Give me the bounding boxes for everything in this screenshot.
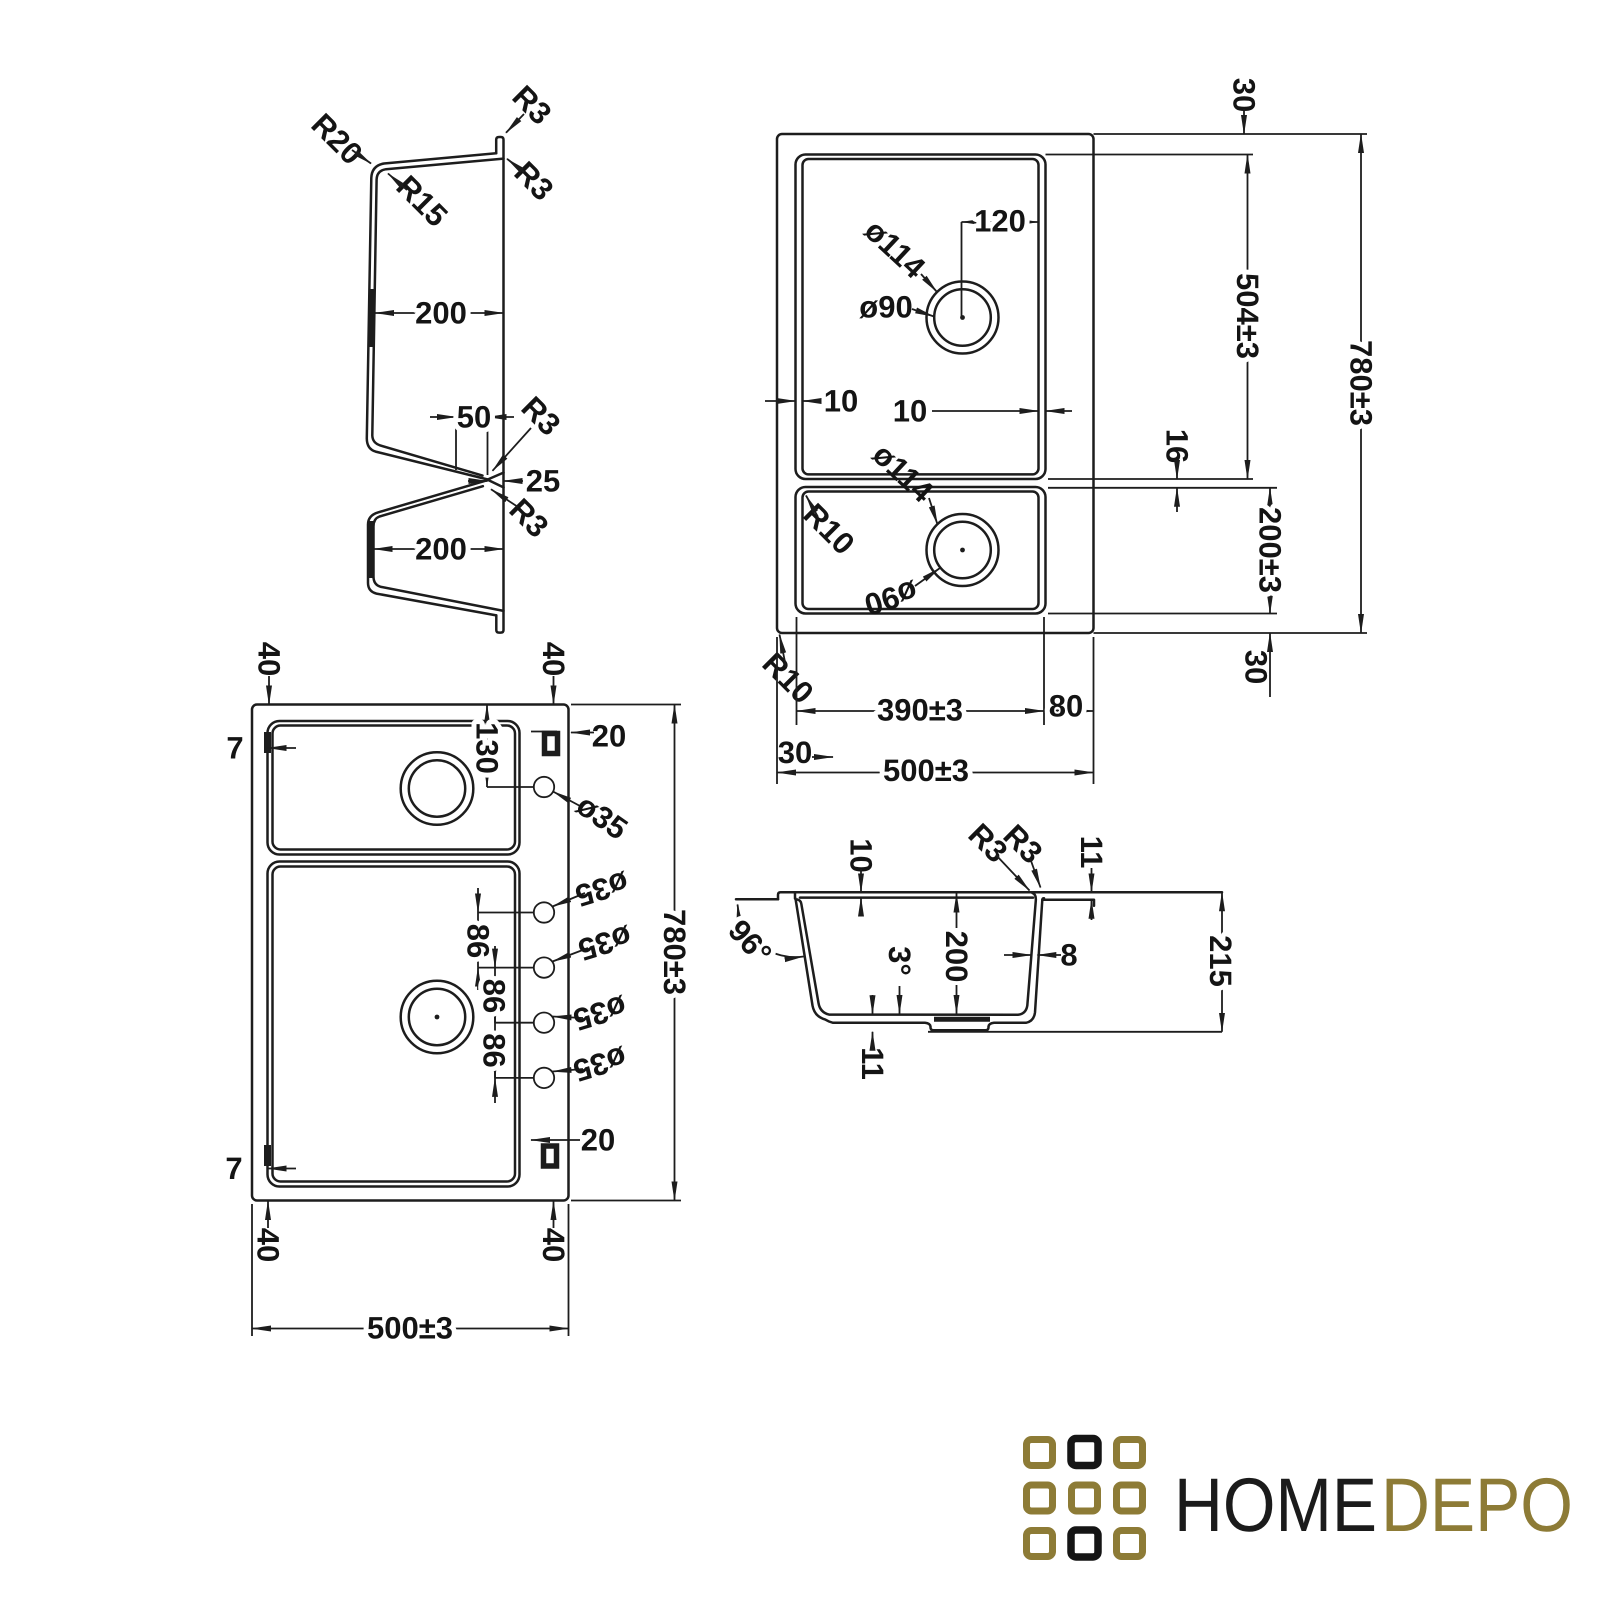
svg-text:R20: R20 [305,107,370,172]
svg-text:120: 120 [974,204,1026,239]
svg-text:780±3: 780±3 [657,909,692,995]
svg-text:200: 200 [939,931,974,983]
svg-text:HOME: HOME [1174,1463,1377,1548]
svg-text:30: 30 [1227,78,1262,112]
svg-text:11: 11 [1074,836,1109,869]
svg-text:R3: R3 [508,155,561,208]
svg-text:200: 200 [415,532,467,567]
svg-text:10: 10 [824,384,858,419]
svg-text:40: 40 [536,642,571,676]
svg-text:16: 16 [1160,429,1195,463]
svg-text:7: 7 [226,731,243,766]
svg-text:R3: R3 [506,79,559,132]
svg-text:ø90: ø90 [859,290,912,325]
svg-text:ø35: ø35 [569,1039,630,1088]
svg-text:504±3: 504±3 [1230,273,1265,359]
svg-text:3°: 3° [882,946,917,976]
svg-text:R15: R15 [390,169,455,234]
svg-text:40: 40 [251,1228,286,1262]
svg-text:500±3: 500±3 [883,753,969,788]
svg-text:ø90: ø90 [860,573,921,622]
svg-text:30: 30 [1239,650,1274,684]
svg-text:40: 40 [536,1228,571,1262]
svg-text:86: 86 [477,1033,512,1067]
svg-text:200: 200 [415,296,467,331]
svg-text:20: 20 [581,1123,615,1158]
svg-text:10: 10 [893,394,927,429]
svg-text:ø35: ø35 [570,787,634,846]
svg-text:R3: R3 [997,818,1050,871]
svg-text:30: 30 [778,735,812,770]
svg-text:80: 80 [1049,689,1083,724]
svg-text:50: 50 [457,400,491,435]
svg-text:215: 215 [1203,935,1238,987]
svg-text:R10: R10 [797,497,862,562]
svg-text:ø35: ø35 [574,918,635,967]
svg-text:500±3: 500±3 [367,1311,453,1346]
svg-text:20: 20 [592,719,626,754]
svg-text:10: 10 [844,838,879,872]
svg-text:200±3: 200±3 [1253,507,1288,593]
svg-text:130: 130 [470,722,505,774]
svg-text:8: 8 [1060,938,1077,973]
svg-text:R3: R3 [515,390,568,443]
svg-text:R10: R10 [756,646,821,711]
svg-text:780±3: 780±3 [1344,340,1379,426]
svg-text:DEPO: DEPO [1381,1463,1573,1548]
svg-text:86: 86 [477,979,512,1013]
svg-text:ø35: ø35 [571,864,632,913]
svg-text:R3: R3 [503,492,556,545]
svg-text:40: 40 [252,642,287,676]
svg-text:86: 86 [461,924,496,958]
svg-text:11: 11 [855,1047,890,1080]
svg-text:96°: 96° [721,913,778,971]
svg-text:7: 7 [225,1151,242,1186]
svg-text:25: 25 [526,464,560,499]
svg-text:390±3: 390±3 [877,693,963,728]
svg-text:ø35: ø35 [569,988,630,1037]
